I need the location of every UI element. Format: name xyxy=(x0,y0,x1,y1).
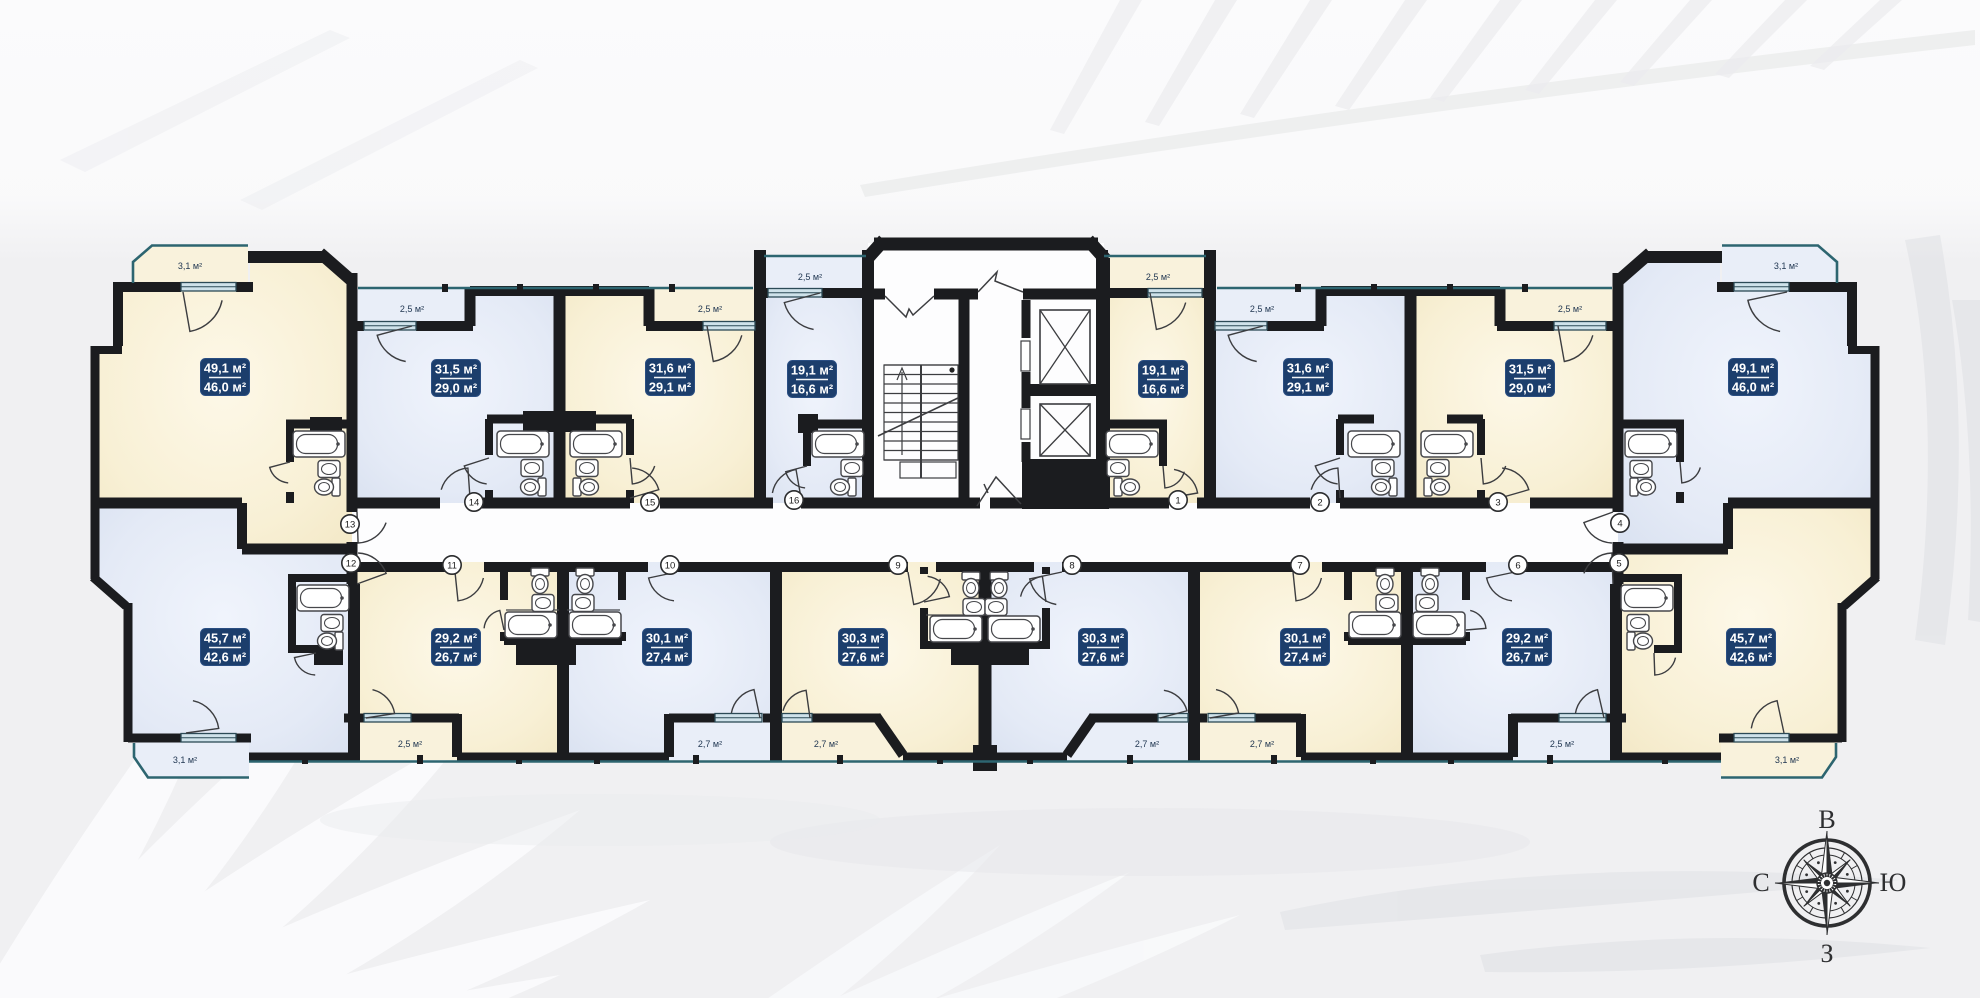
svg-text:4: 4 xyxy=(1617,518,1622,529)
svg-text:16: 16 xyxy=(789,495,800,506)
svg-text:31,6 м²: 31,6 м² xyxy=(649,361,691,376)
svg-text:29,2 м²: 29,2 м² xyxy=(1506,631,1548,646)
svg-text:29,2 м²: 29,2 м² xyxy=(435,631,477,646)
svg-text:10: 10 xyxy=(665,560,676,571)
svg-text:2,7 м²: 2,7 м² xyxy=(1250,739,1274,749)
svg-text:3,1 м²: 3,1 м² xyxy=(173,755,197,765)
svg-text:29,0 м²: 29,0 м² xyxy=(435,381,477,396)
svg-text:42,6 м²: 42,6 м² xyxy=(1730,650,1772,665)
svg-text:2,7 м²: 2,7 м² xyxy=(698,739,722,749)
svg-text:2,5 м²: 2,5 м² xyxy=(1558,304,1582,314)
svg-text:49,1 м²: 49,1 м² xyxy=(204,361,246,376)
svg-text:46,0 м²: 46,0 м² xyxy=(1732,380,1774,395)
svg-text:2,5 м²: 2,5 м² xyxy=(398,739,422,749)
svg-text:27,6 м²: 27,6 м² xyxy=(842,650,884,665)
svg-text:2,5 м²: 2,5 м² xyxy=(400,304,424,314)
svg-text:27,6 м²: 27,6 м² xyxy=(1082,650,1124,665)
svg-text:45,7 м²: 45,7 м² xyxy=(204,631,246,646)
svg-text:27,4 м²: 27,4 м² xyxy=(646,650,688,665)
svg-text:26,7 м²: 26,7 м² xyxy=(435,650,477,665)
svg-text:16,6 м²: 16,6 м² xyxy=(1142,382,1184,397)
svg-text:2,5 м²: 2,5 м² xyxy=(1550,739,1574,749)
svg-text:29,1 м²: 29,1 м² xyxy=(649,380,691,395)
svg-text:2,7 м²: 2,7 м² xyxy=(1135,739,1159,749)
svg-text:19,1 м²: 19,1 м² xyxy=(791,363,833,378)
svg-text:13: 13 xyxy=(345,519,356,530)
svg-text:31,6 м²: 31,6 м² xyxy=(1287,361,1329,376)
svg-text:В: В xyxy=(1818,805,1835,834)
svg-text:46,0 м²: 46,0 м² xyxy=(204,380,246,395)
svg-text:7: 7 xyxy=(1297,560,1302,571)
svg-text:3,1 м²: 3,1 м² xyxy=(1775,755,1799,765)
svg-text:8: 8 xyxy=(1069,560,1074,571)
svg-text:30,3 м²: 30,3 м² xyxy=(842,631,884,646)
svg-text:2,5 м²: 2,5 м² xyxy=(798,272,822,282)
svg-text:2,5 м²: 2,5 м² xyxy=(698,304,722,314)
svg-text:30,1 м²: 30,1 м² xyxy=(1284,631,1326,646)
svg-text:26,7 м²: 26,7 м² xyxy=(1506,650,1548,665)
svg-text:2,7 м²: 2,7 м² xyxy=(814,739,838,749)
svg-text:3: 3 xyxy=(1495,497,1500,508)
svg-text:11: 11 xyxy=(447,560,457,571)
svg-text:3,1 м²: 3,1 м² xyxy=(178,261,202,271)
svg-text:12: 12 xyxy=(346,558,357,569)
svg-text:2: 2 xyxy=(1317,497,1322,508)
svg-text:19,1 м²: 19,1 м² xyxy=(1142,363,1184,378)
svg-text:29,0 м²: 29,0 м² xyxy=(1509,381,1551,396)
svg-text:С: С xyxy=(1752,868,1769,897)
svg-text:2,5 м²: 2,5 м² xyxy=(1146,272,1170,282)
svg-text:3,1 м²: 3,1 м² xyxy=(1774,261,1798,271)
svg-text:30,1 м²: 30,1 м² xyxy=(646,631,688,646)
svg-text:31,5 м²: 31,5 м² xyxy=(1509,362,1551,377)
svg-text:27,4 м²: 27,4 м² xyxy=(1284,650,1326,665)
svg-text:14: 14 xyxy=(469,497,480,508)
svg-text:Ю: Ю xyxy=(1880,868,1907,897)
svg-text:30,3 м²: 30,3 м² xyxy=(1082,631,1124,646)
svg-text:2,5 м²: 2,5 м² xyxy=(1250,304,1274,314)
svg-text:15: 15 xyxy=(645,497,656,508)
svg-text:42,6 м²: 42,6 м² xyxy=(204,650,246,665)
svg-text:49,1 м²: 49,1 м² xyxy=(1732,361,1774,376)
svg-text:45,7 м²: 45,7 м² xyxy=(1730,631,1772,646)
svg-text:З: З xyxy=(1820,939,1833,968)
svg-text:1: 1 xyxy=(1175,495,1180,506)
svg-text:6: 6 xyxy=(1515,560,1520,571)
svg-text:16,6 м²: 16,6 м² xyxy=(791,382,833,397)
svg-text:9: 9 xyxy=(895,560,900,571)
svg-text:5: 5 xyxy=(1616,558,1621,569)
svg-text:29,1 м²: 29,1 м² xyxy=(1287,380,1329,395)
svg-text:31,5 м²: 31,5 м² xyxy=(435,362,477,377)
